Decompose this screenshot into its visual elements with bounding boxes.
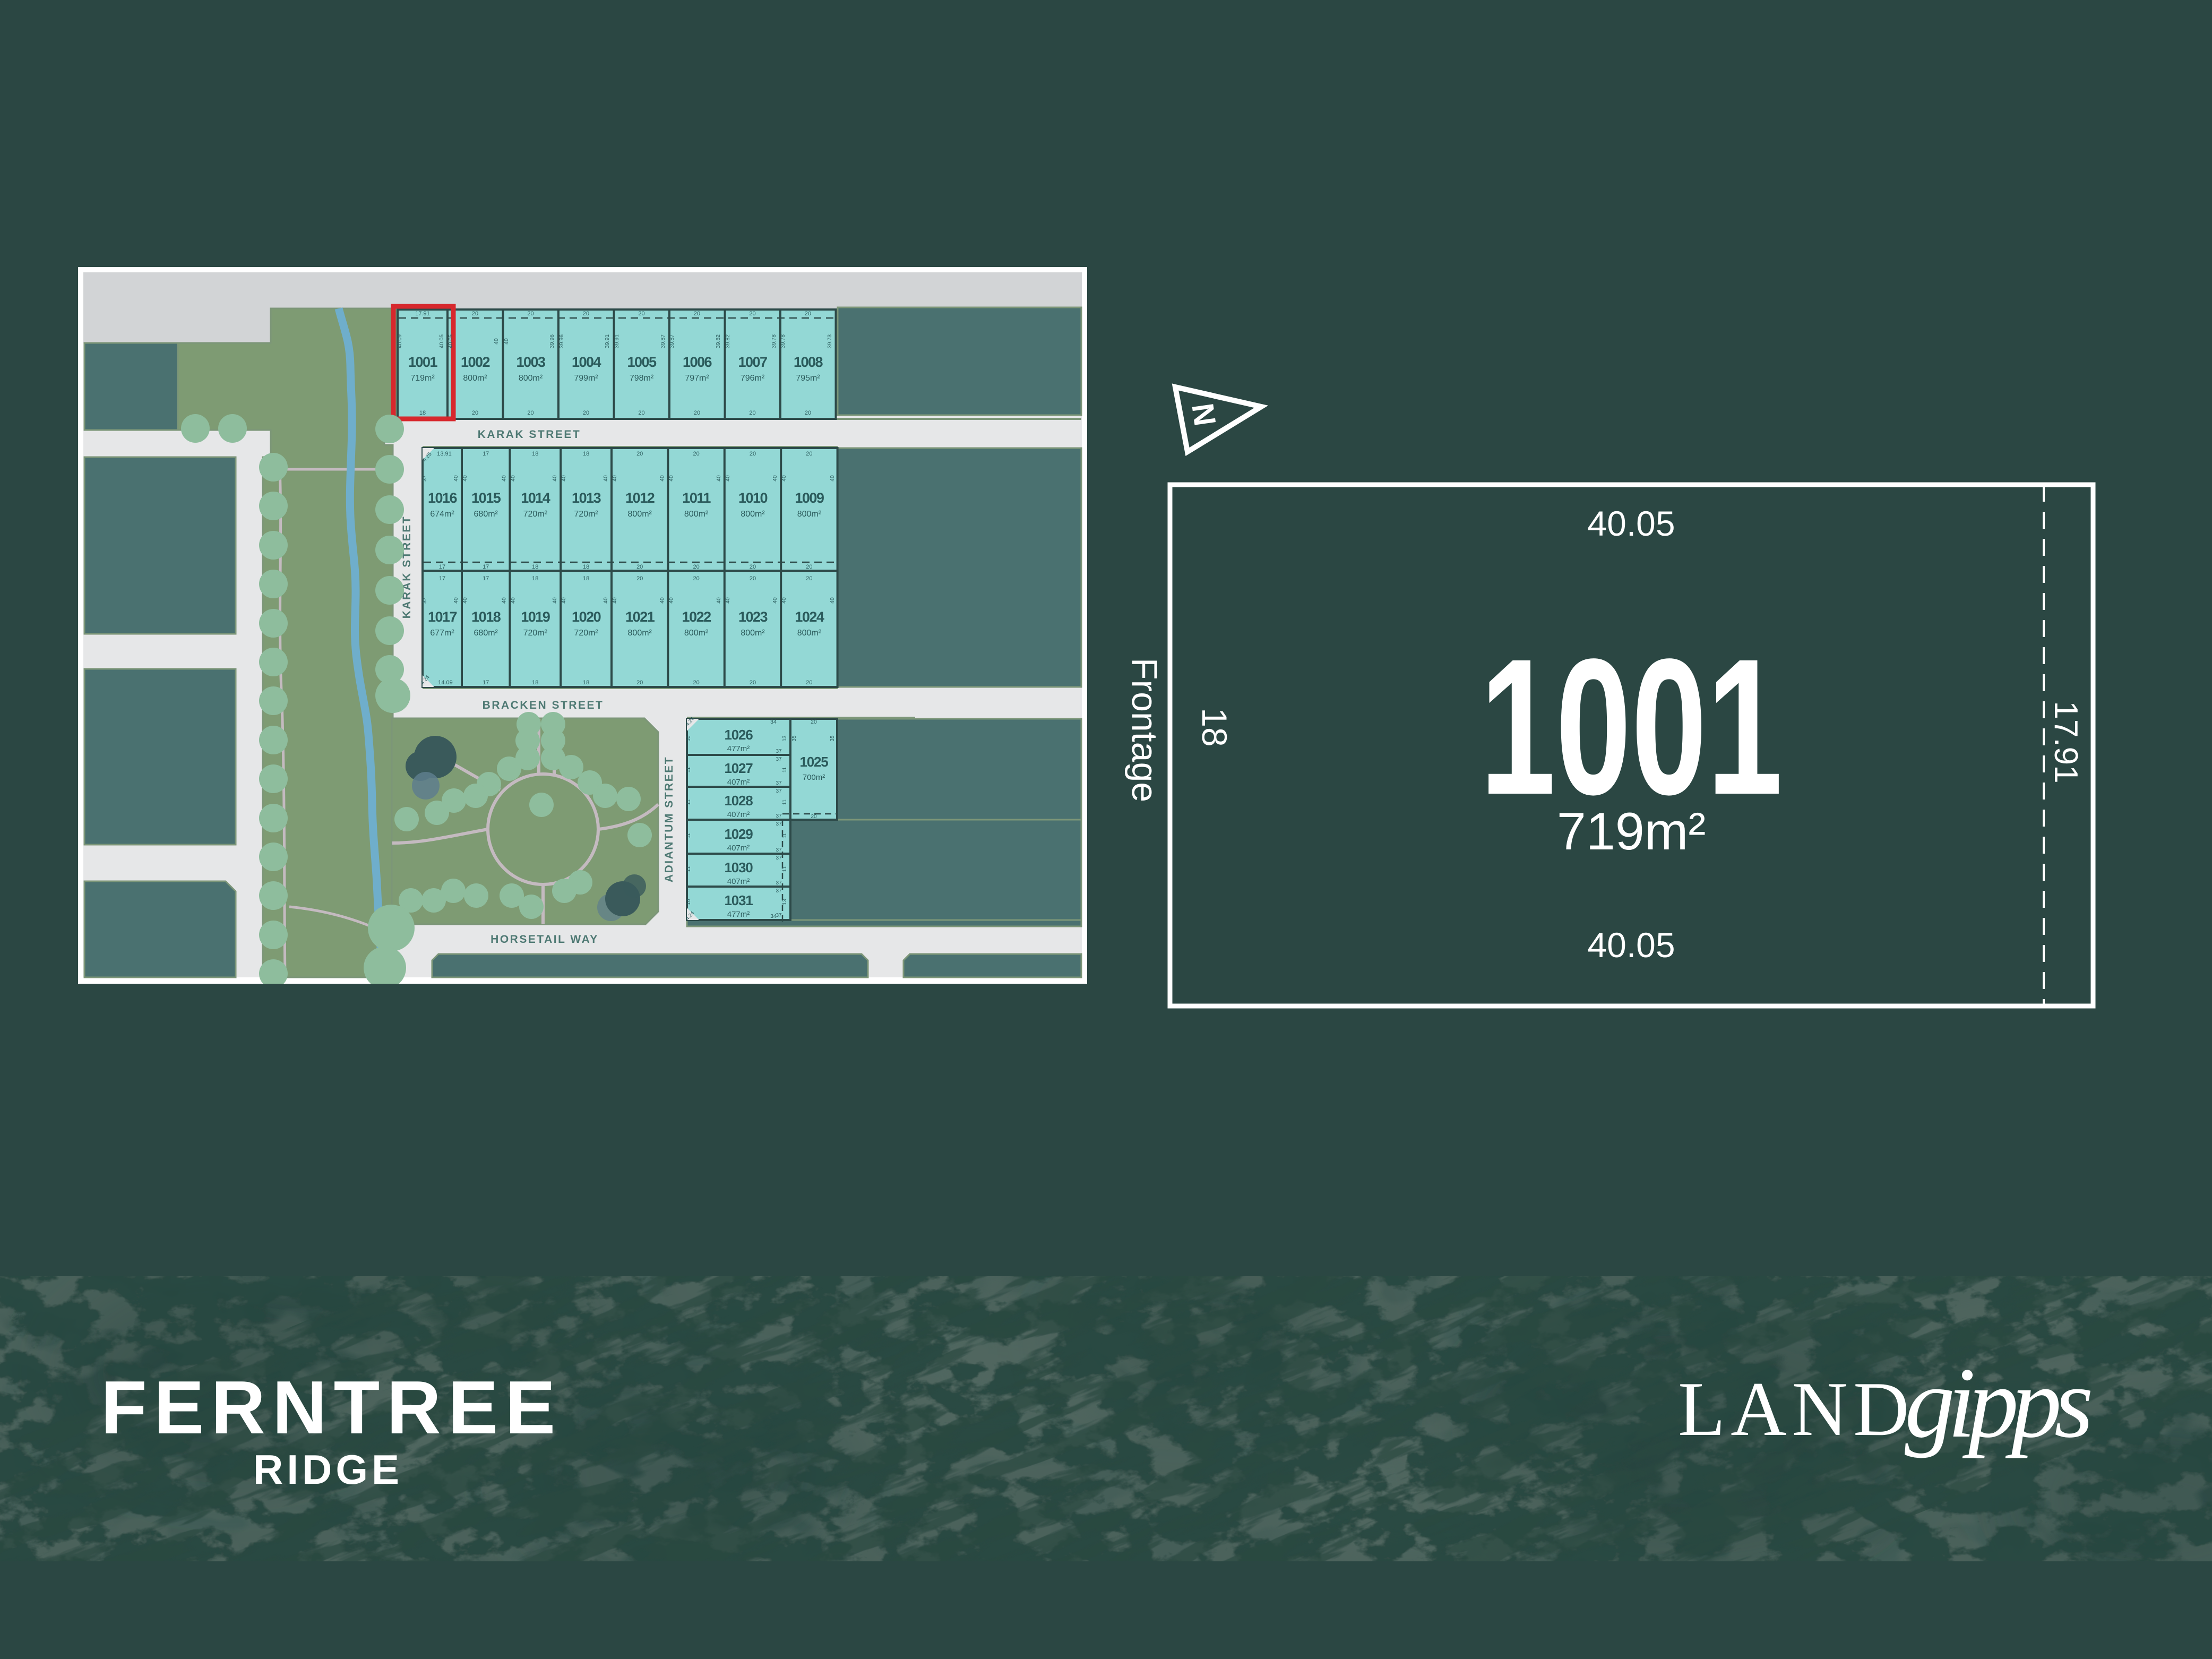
svg-text:20: 20 <box>806 680 812 686</box>
svg-text:1008: 1008 <box>794 354 823 370</box>
svg-text:719m²: 719m² <box>1557 802 1706 861</box>
svg-text:18: 18 <box>532 564 538 570</box>
svg-text:1010: 1010 <box>738 490 768 506</box>
svg-text:37: 37 <box>776 855 782 861</box>
svg-text:BRACKEN STREET: BRACKEN STREET <box>483 699 604 711</box>
svg-text:1024: 1024 <box>795 609 824 625</box>
svg-text:40: 40 <box>829 475 836 482</box>
svg-text:407m²: 407m² <box>727 778 750 787</box>
svg-text:18: 18 <box>532 451 538 457</box>
svg-text:39.96: 39.96 <box>558 334 565 348</box>
svg-text:40: 40 <box>716 597 722 604</box>
svg-text:11: 11 <box>686 767 692 772</box>
svg-text:1016: 1016 <box>428 490 458 506</box>
svg-text:40: 40 <box>781 475 787 482</box>
svg-text:34: 34 <box>770 719 777 725</box>
svg-text:37: 37 <box>421 597 428 604</box>
svg-text:18: 18 <box>1195 708 1234 746</box>
svg-text:40: 40 <box>659 597 665 604</box>
svg-text:37: 37 <box>776 913 782 918</box>
svg-text:20: 20 <box>750 575 756 582</box>
svg-text:800m²: 800m² <box>628 510 652 519</box>
svg-text:HORSETAIL WAY: HORSETAIL WAY <box>490 933 599 945</box>
svg-text:1028: 1028 <box>724 793 753 809</box>
svg-text:20: 20 <box>583 410 589 416</box>
svg-text:1022: 1022 <box>682 609 711 625</box>
svg-text:800m²: 800m² <box>519 374 543 383</box>
svg-text:1015: 1015 <box>471 490 501 506</box>
svg-text:37: 37 <box>776 749 782 754</box>
svg-text:40: 40 <box>716 475 722 482</box>
svg-text:800m²: 800m² <box>797 629 822 638</box>
svg-text:1030: 1030 <box>724 859 753 875</box>
svg-text:800m²: 800m² <box>684 510 709 519</box>
svg-text:40: 40 <box>503 338 510 345</box>
svg-text:20: 20 <box>693 451 699 457</box>
svg-text:10: 10 <box>686 899 692 905</box>
svg-text:800m²: 800m² <box>684 629 709 638</box>
svg-text:40.05: 40.05 <box>447 334 454 348</box>
svg-text:17: 17 <box>439 564 445 570</box>
svg-text:20: 20 <box>750 451 756 457</box>
svg-text:40: 40 <box>552 597 558 604</box>
svg-text:40: 40 <box>781 597 787 604</box>
svg-text:1019: 1019 <box>521 609 550 625</box>
svg-text:1021: 1021 <box>625 609 655 625</box>
svg-text:800m²: 800m² <box>741 629 765 638</box>
svg-text:1017: 1017 <box>428 609 457 625</box>
svg-text:39.87: 39.87 <box>669 334 675 348</box>
svg-text:17: 17 <box>483 575 489 582</box>
svg-text:40: 40 <box>659 475 665 482</box>
svg-text:1001: 1001 <box>408 354 438 370</box>
svg-text:40.05: 40.05 <box>438 334 445 348</box>
svg-text:800m²: 800m² <box>463 374 487 383</box>
svg-text:17: 17 <box>483 564 489 570</box>
svg-text:39.87: 39.87 <box>660 334 666 348</box>
svg-text:20: 20 <box>749 311 755 317</box>
svg-text:13: 13 <box>782 735 788 742</box>
svg-text:40: 40 <box>561 475 567 482</box>
svg-text:1027: 1027 <box>724 760 753 776</box>
svg-text:40: 40 <box>462 475 468 482</box>
svg-text:KARAK STREET: KARAK STREET <box>401 515 413 619</box>
svg-text:37: 37 <box>776 880 782 886</box>
svg-text:1005: 1005 <box>627 354 657 370</box>
svg-text:37: 37 <box>776 888 782 894</box>
svg-text:680m²: 680m² <box>474 629 498 638</box>
svg-text:20: 20 <box>811 814 817 820</box>
svg-text:39.96: 39.96 <box>549 334 555 348</box>
svg-text:719m²: 719m² <box>410 374 435 383</box>
svg-text:18: 18 <box>532 575 538 582</box>
svg-text:18: 18 <box>583 680 589 686</box>
svg-text:17: 17 <box>483 680 489 686</box>
svg-text:20: 20 <box>527 311 533 317</box>
svg-text:20: 20 <box>636 451 643 457</box>
svg-text:40: 40 <box>725 475 731 482</box>
svg-text:1025: 1025 <box>799 754 828 770</box>
svg-text:796m²: 796m² <box>741 374 765 383</box>
svg-text:11: 11 <box>686 799 692 805</box>
svg-text:18: 18 <box>532 680 538 686</box>
svg-text:40: 40 <box>501 475 507 482</box>
svg-text:17: 17 <box>439 575 445 582</box>
svg-text:14.09: 14.09 <box>438 680 453 686</box>
svg-text:1003: 1003 <box>516 354 546 370</box>
svg-text:40: 40 <box>725 597 731 604</box>
svg-text:20: 20 <box>636 575 643 582</box>
svg-text:720m²: 720m² <box>574 510 598 519</box>
svg-text:37: 37 <box>421 475 428 482</box>
svg-text:40: 40 <box>772 597 778 604</box>
svg-text:477m²: 477m² <box>727 744 750 753</box>
svg-text:20: 20 <box>583 311 589 317</box>
svg-text:40: 40 <box>453 597 459 604</box>
svg-text:17.91: 17.91 <box>415 311 430 317</box>
svg-text:1031: 1031 <box>724 892 753 908</box>
svg-text:17.91: 17.91 <box>2047 701 2084 783</box>
svg-text:20: 20 <box>750 680 756 686</box>
svg-text:37: 37 <box>776 847 782 853</box>
svg-text:40: 40 <box>501 597 507 604</box>
svg-text:720m²: 720m² <box>523 629 548 638</box>
svg-text:13: 13 <box>782 899 788 905</box>
svg-text:39.91: 39.91 <box>614 334 620 348</box>
svg-text:37: 37 <box>776 780 782 786</box>
svg-text:20: 20 <box>694 410 700 416</box>
svg-text:20: 20 <box>636 680 643 686</box>
svg-text:20: 20 <box>694 311 700 317</box>
svg-text:20: 20 <box>811 719 817 725</box>
svg-text:1018: 1018 <box>471 609 501 625</box>
svg-text:40: 40 <box>510 597 516 604</box>
svg-text:1012: 1012 <box>625 490 655 506</box>
svg-text:20: 20 <box>750 564 756 570</box>
svg-text:680m²: 680m² <box>474 510 498 519</box>
svg-text:407m²: 407m² <box>727 877 750 886</box>
svg-text:800m²: 800m² <box>628 629 652 638</box>
svg-text:797m²: 797m² <box>685 374 709 383</box>
svg-text:39.78: 39.78 <box>771 334 777 348</box>
svg-text:KARAK STREET: KARAK STREET <box>478 428 581 441</box>
svg-text:40: 40 <box>462 597 468 604</box>
svg-text:40: 40 <box>829 597 836 604</box>
svg-text:40: 40 <box>510 475 516 482</box>
svg-text:11: 11 <box>686 832 692 838</box>
svg-text:407m²: 407m² <box>727 844 750 853</box>
svg-text:798m²: 798m² <box>630 374 654 383</box>
svg-text:1026: 1026 <box>724 727 753 743</box>
svg-text:37: 37 <box>776 821 782 827</box>
svg-text:11: 11 <box>782 832 788 838</box>
svg-text:40: 40 <box>603 597 609 604</box>
svg-text:37: 37 <box>776 788 782 794</box>
svg-text:1002: 1002 <box>461 354 490 370</box>
svg-text:674m²: 674m² <box>430 510 454 519</box>
svg-text:20: 20 <box>693 680 699 686</box>
svg-text:11: 11 <box>782 767 788 772</box>
svg-text:40: 40 <box>668 597 674 604</box>
svg-text:ADIANTUM STREET: ADIANTUM STREET <box>663 756 675 882</box>
svg-text:477m²: 477m² <box>727 910 750 919</box>
svg-text:720m²: 720m² <box>523 510 548 519</box>
svg-text:13.91: 13.91 <box>437 451 452 457</box>
svg-text:18: 18 <box>583 575 589 582</box>
svg-text:1020: 1020 <box>572 609 601 625</box>
svg-text:407m²: 407m² <box>727 810 750 819</box>
svg-text:20: 20 <box>472 410 478 416</box>
svg-text:17: 17 <box>483 451 489 457</box>
svg-text:40: 40 <box>612 475 618 482</box>
svg-text:700m²: 700m² <box>803 773 825 782</box>
svg-text:795m²: 795m² <box>796 374 820 383</box>
svg-text:20: 20 <box>805 311 811 317</box>
svg-text:20: 20 <box>693 575 699 582</box>
svg-text:10: 10 <box>686 735 692 742</box>
svg-text:35: 35 <box>791 735 797 742</box>
svg-text:37: 37 <box>776 757 782 762</box>
svg-text:800m²: 800m² <box>797 510 822 519</box>
svg-text:40.05: 40.05 <box>1587 504 1675 543</box>
svg-text:40: 40 <box>612 597 618 604</box>
svg-text:40: 40 <box>561 597 567 604</box>
svg-text:40: 40 <box>772 475 778 482</box>
svg-text:677m²: 677m² <box>430 629 454 638</box>
svg-text:800m²: 800m² <box>741 510 765 519</box>
svg-text:20: 20 <box>749 410 755 416</box>
svg-text:1029: 1029 <box>724 826 753 842</box>
svg-text:20: 20 <box>472 311 478 317</box>
svg-text:20: 20 <box>693 564 699 570</box>
svg-text:39.73: 39.73 <box>827 334 833 348</box>
svg-text:20: 20 <box>636 564 643 570</box>
svg-text:40: 40 <box>668 475 674 482</box>
svg-text:20: 20 <box>806 564 812 570</box>
svg-text:20: 20 <box>805 410 811 416</box>
svg-text:20: 20 <box>806 451 812 457</box>
svg-text:11: 11 <box>782 799 788 805</box>
svg-text:40: 40 <box>552 475 558 482</box>
svg-text:799m²: 799m² <box>574 374 598 383</box>
svg-text:1011: 1011 <box>682 490 711 506</box>
svg-text:1009: 1009 <box>795 490 824 506</box>
svg-text:1013: 1013 <box>572 490 601 506</box>
svg-text:40.05: 40.05 <box>1587 925 1675 965</box>
svg-text:11: 11 <box>782 866 788 872</box>
svg-text:20: 20 <box>806 575 812 582</box>
svg-text:FERNTREE: FERNTREE <box>101 1365 562 1450</box>
svg-text:1006: 1006 <box>683 354 712 370</box>
svg-text:11: 11 <box>686 866 692 872</box>
svg-text:1004: 1004 <box>572 354 601 370</box>
svg-text:34: 34 <box>770 913 777 919</box>
svg-text:40: 40 <box>493 338 500 345</box>
svg-text:40: 40 <box>453 475 459 482</box>
svg-text:1007: 1007 <box>738 354 767 370</box>
svg-text:20: 20 <box>638 311 644 317</box>
svg-text:1023: 1023 <box>738 609 768 625</box>
svg-text:39.78: 39.78 <box>780 334 786 348</box>
svg-text:39.82: 39.82 <box>715 334 721 348</box>
svg-text:RIDGE: RIDGE <box>253 1446 403 1493</box>
svg-text:720m²: 720m² <box>574 629 598 638</box>
svg-text:39.82: 39.82 <box>725 334 731 348</box>
svg-text:20: 20 <box>638 410 644 416</box>
svg-text:20: 20 <box>527 410 533 416</box>
svg-text:Frontage: Frontage <box>1124 658 1165 802</box>
svg-text:37: 37 <box>776 813 782 819</box>
svg-text:1014: 1014 <box>521 490 550 506</box>
svg-text:LAND: LAND <box>1678 1366 1915 1452</box>
svg-text:40.09: 40.09 <box>397 334 403 348</box>
svg-text:N: N <box>1185 401 1222 428</box>
svg-text:18: 18 <box>583 451 589 457</box>
svg-text:18: 18 <box>583 564 589 570</box>
svg-text:18: 18 <box>419 410 426 416</box>
svg-text:gipps: gipps <box>1905 1347 2091 1459</box>
svg-text:40: 40 <box>603 475 609 482</box>
svg-text:35: 35 <box>830 735 836 742</box>
svg-text:39.91: 39.91 <box>604 334 610 348</box>
